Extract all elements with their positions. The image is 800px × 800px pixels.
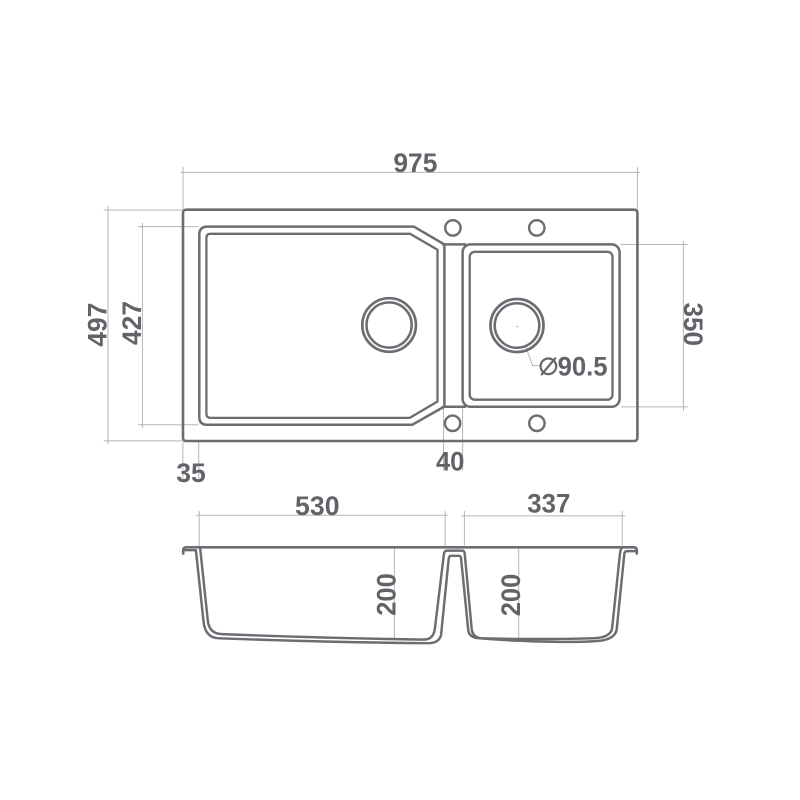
svg-text:35: 35	[176, 458, 206, 488]
svg-text:975: 975	[393, 148, 437, 178]
svg-text:40: 40	[436, 446, 465, 476]
svg-text:350: 350	[678, 302, 708, 346]
svg-text:497: 497	[82, 303, 112, 347]
svg-text:337: 337	[527, 489, 570, 519]
svg-text:427: 427	[117, 301, 147, 345]
svg-text:530: 530	[295, 491, 340, 521]
svg-text:200: 200	[372, 573, 402, 616]
svg-text:90.5: 90.5	[558, 351, 608, 381]
svg-text:200: 200	[496, 574, 526, 617]
